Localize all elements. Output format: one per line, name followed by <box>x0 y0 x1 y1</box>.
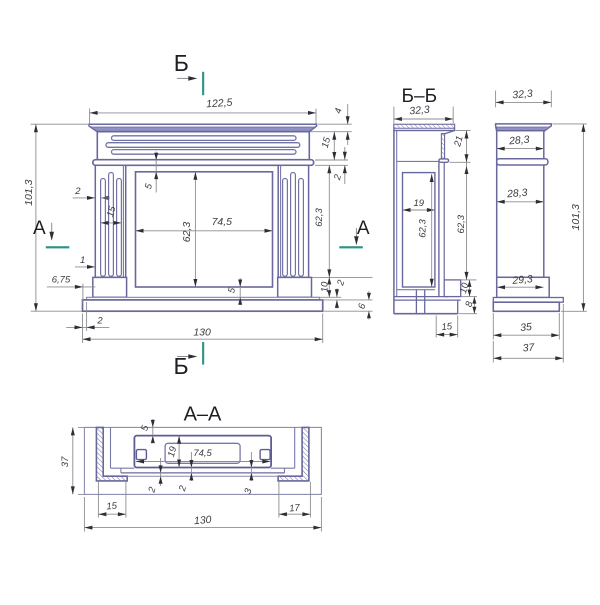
svg-text:62,3: 62,3 <box>181 222 193 243</box>
svg-text:32,3: 32,3 <box>409 104 431 118</box>
svg-text:15: 15 <box>106 500 118 512</box>
svg-text:101,3: 101,3 <box>23 179 35 205</box>
svg-text:Б: Б <box>174 50 189 76</box>
svg-text:74,5: 74,5 <box>212 216 233 228</box>
svg-text:10: 10 <box>320 281 331 292</box>
svg-text:1: 1 <box>80 255 85 266</box>
svg-text:28,3: 28,3 <box>506 187 529 201</box>
svg-text:37: 37 <box>60 456 71 467</box>
svg-text:122,5: 122,5 <box>206 97 233 111</box>
svg-text:2: 2 <box>96 316 103 327</box>
svg-text:19: 19 <box>414 198 425 209</box>
svg-text:101,3: 101,3 <box>570 204 582 230</box>
svg-text:62,3: 62,3 <box>314 208 325 227</box>
svg-text:29,3: 29,3 <box>511 273 534 287</box>
svg-text:32,3: 32,3 <box>512 88 534 102</box>
svg-text:130: 130 <box>193 514 212 527</box>
svg-text:35: 35 <box>520 321 533 334</box>
svg-text:130: 130 <box>193 327 211 339</box>
svg-text:17: 17 <box>289 502 301 514</box>
svg-text:A–A: A–A <box>184 404 222 426</box>
svg-text:15: 15 <box>441 321 453 333</box>
svg-text:28,3: 28,3 <box>508 134 531 148</box>
svg-text:62,3: 62,3 <box>418 219 429 238</box>
svg-text:A: A <box>33 218 46 239</box>
svg-text:2: 2 <box>74 186 81 197</box>
svg-text:A: A <box>357 218 370 239</box>
svg-text:6,75: 6,75 <box>52 275 71 286</box>
svg-text:62,3: 62,3 <box>456 214 467 233</box>
svg-text:74,5: 74,5 <box>193 448 212 459</box>
svg-text:Б: Б <box>173 353 188 379</box>
svg-text:37: 37 <box>522 341 536 354</box>
